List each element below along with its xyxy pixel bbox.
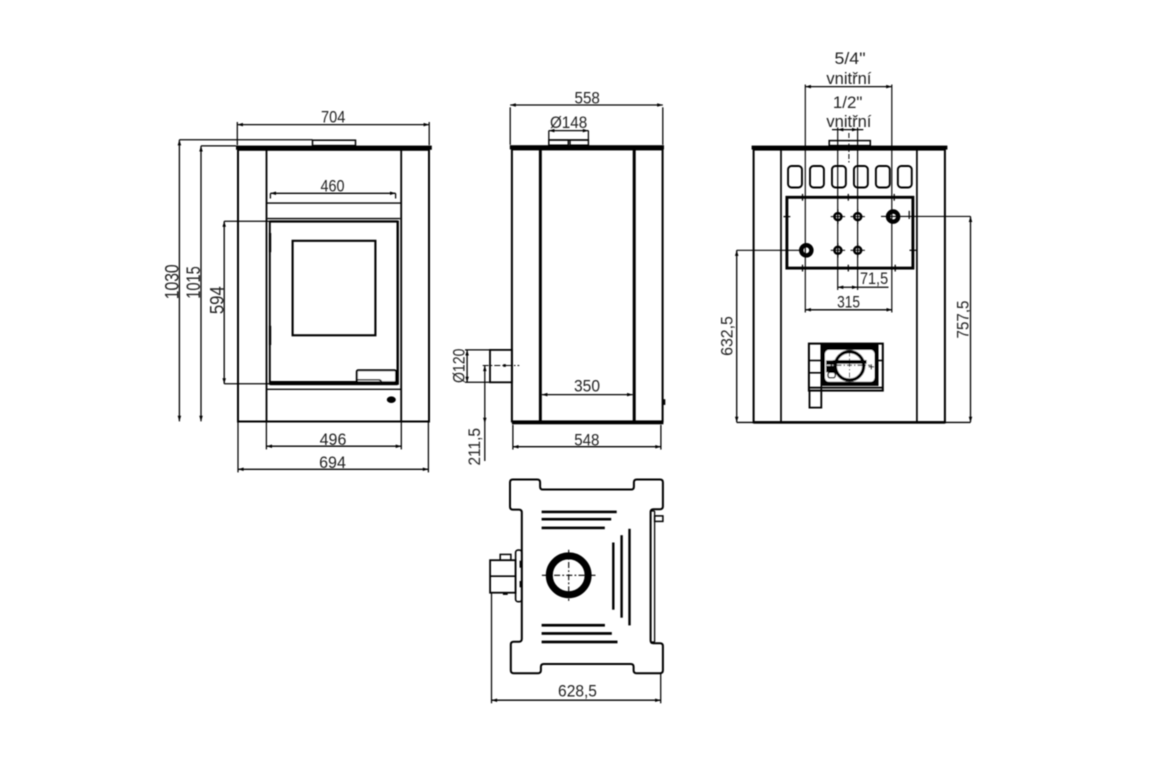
svg-text:71,5: 71,5 <box>860 269 888 288</box>
svg-text:594: 594 <box>207 286 229 314</box>
svg-text:vnitřní: vnitřní <box>826 112 871 131</box>
svg-text:Ø120: Ø120 <box>450 349 469 384</box>
svg-text:Ø148: Ø148 <box>550 113 587 132</box>
svg-text:704: 704 <box>321 108 345 127</box>
svg-text:548: 548 <box>574 431 599 450</box>
svg-text:350: 350 <box>574 377 600 396</box>
svg-text:1015: 1015 <box>183 266 205 299</box>
svg-text:460: 460 <box>321 177 345 196</box>
svg-text:5/4": 5/4" <box>835 49 866 68</box>
svg-text:694: 694 <box>319 453 346 472</box>
svg-text:315: 315 <box>837 293 860 312</box>
svg-text:1030: 1030 <box>162 264 184 299</box>
svg-text:vnitřní: vnitřní <box>826 69 871 88</box>
svg-text:211,5: 211,5 <box>465 428 484 466</box>
svg-text:1/2": 1/2" <box>833 93 863 112</box>
svg-text:496: 496 <box>320 430 347 449</box>
svg-text:757,5: 757,5 <box>954 301 973 339</box>
svg-text:558: 558 <box>575 89 600 108</box>
svg-text:632,5: 632,5 <box>718 316 737 356</box>
svg-text:628,5: 628,5 <box>558 682 597 701</box>
